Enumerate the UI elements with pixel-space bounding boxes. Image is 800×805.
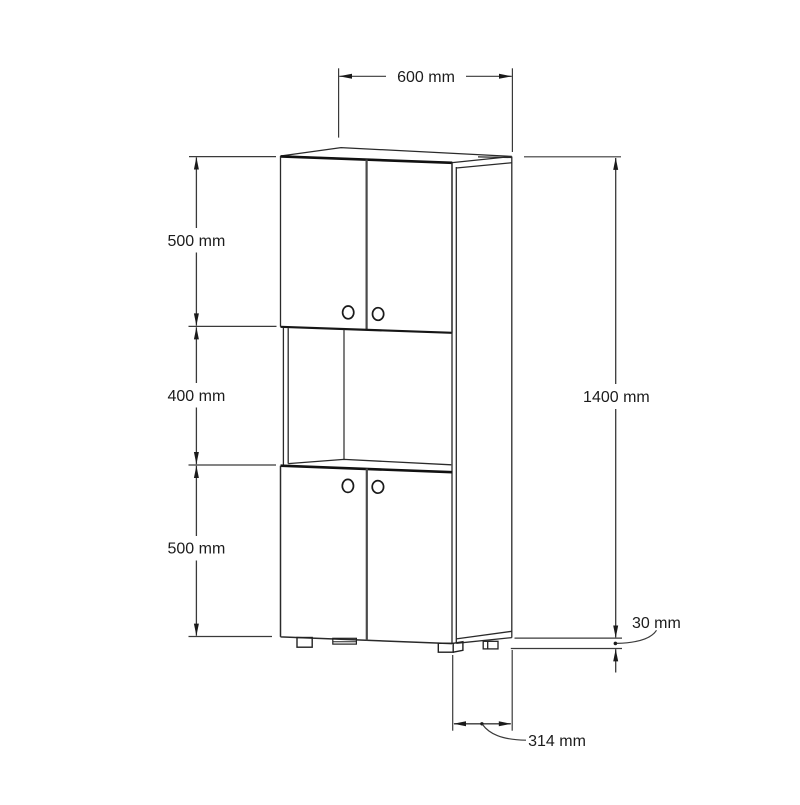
svg-text:400 mm: 400 mm (168, 388, 226, 405)
svg-text:500 mm: 500 mm (168, 233, 226, 250)
svg-text:500 mm: 500 mm (168, 541, 226, 558)
svg-text:1400 mm: 1400 mm (583, 389, 650, 406)
svg-text:314 mm: 314 mm (528, 733, 586, 750)
svg-text:30 mm: 30 mm (632, 615, 681, 632)
svg-text:600 mm: 600 mm (397, 69, 455, 86)
